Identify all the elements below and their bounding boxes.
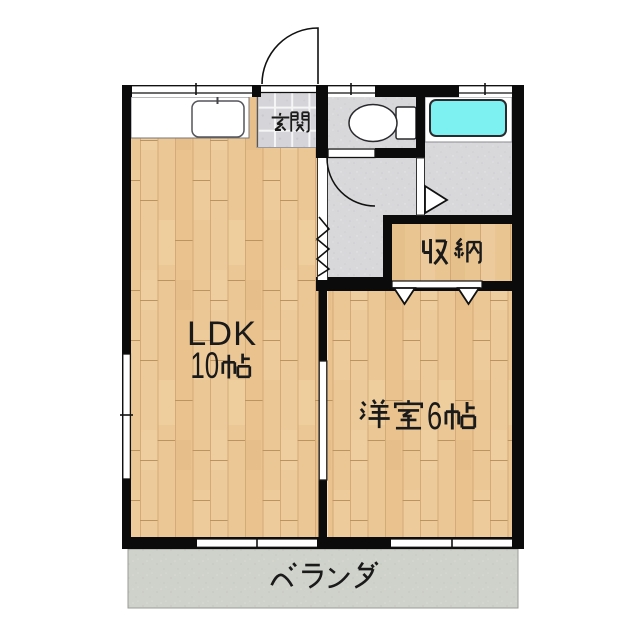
svg-text:10: 10: [190, 344, 219, 386]
svg-text:6: 6: [427, 395, 442, 438]
